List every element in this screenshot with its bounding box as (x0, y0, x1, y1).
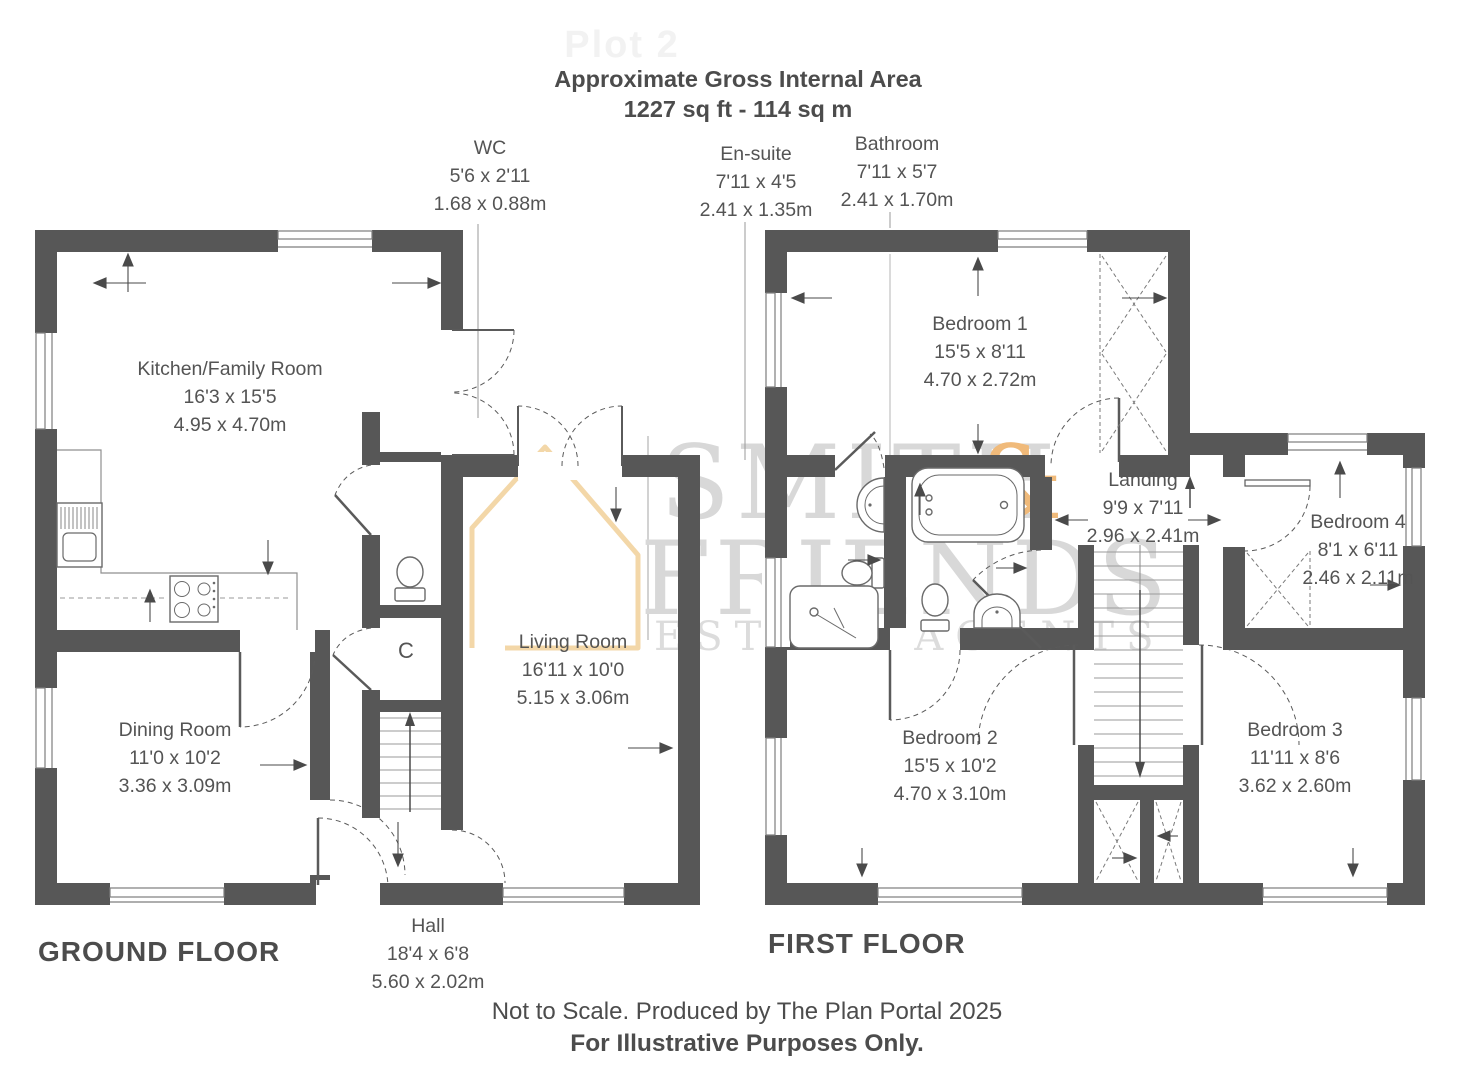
cupboard-label: C (398, 638, 414, 664)
staircase-first (1094, 545, 1183, 778)
room-label-bathroom: Bathroom 7'11 x 5'7 2.41 x 1.70m (841, 130, 954, 214)
room-dim-metric: 2.96 x 2.41m (1087, 522, 1200, 550)
toilet-icon (395, 557, 425, 601)
room-dim-imperial: 9'9 x 7'11 (1087, 494, 1200, 522)
room-label-bedroom3: Bedroom 3 11'11 x 8'6 3.62 x 2.60m (1239, 716, 1352, 800)
room-label-wc: WC 5'6 x 2'11 1.68 x 0.88m (434, 134, 547, 218)
room-label-hall: Hall 18'4 x 6'8 5.60 x 2.02m (372, 912, 485, 996)
ground-windows (32, 227, 624, 908)
room-dim-metric: 4.70 x 3.10m (894, 780, 1007, 808)
room-dim-metric: 3.36 x 3.09m (119, 772, 232, 800)
floorplan-page: SMITH & FRIENDS ESTATE AGENTS (0, 0, 1481, 1080)
room-dim-imperial: 16'3 x 15'5 (137, 383, 322, 411)
living-doors-opening (518, 452, 622, 480)
room-label-ensuite: En-suite 7'11 x 4'5 2.41 x 1.35m (700, 140, 813, 224)
room-label-bedroom1: Bedroom 1 15'5 x 8'11 4.70 x 2.72m (924, 310, 1037, 394)
room-name: Bedroom 1 (924, 310, 1037, 338)
room-name: Dining Room (119, 716, 232, 744)
room-dim-imperial: 15'5 x 8'11 (924, 338, 1037, 366)
plot-ghost-label: Plot 2 (564, 24, 679, 67)
room-label-landing: Landing 9'9 x 7'11 2.96 x 2.41m (1087, 466, 1200, 550)
wardrobe-bedroom4 (1247, 551, 1310, 626)
room-dim-imperial: 8'1 x 6'11 (1302, 536, 1413, 564)
room-dim-metric: 4.95 x 4.70m (137, 411, 322, 439)
room-name: Bedroom 4 (1302, 508, 1413, 536)
ensuite-toilet-icon (842, 558, 884, 588)
staircase-ground (380, 712, 441, 812)
room-dim-imperial: 7'11 x 4'5 (700, 168, 813, 196)
ground-door-swings (240, 465, 505, 883)
room-dim-imperial: 11'11 x 8'6 (1239, 744, 1352, 772)
hob-icon (170, 576, 218, 622)
room-dim-imperial: 7'11 x 5'7 (841, 158, 954, 186)
room-dim-metric: 2.41 x 1.70m (841, 186, 954, 214)
wardrobe-bedroom1 (1100, 254, 1166, 453)
room-name: Kitchen/Family Room (137, 355, 322, 383)
room-label-living: Living Room 16'11 x 10'0 5.15 x 3.06m (517, 628, 630, 712)
first-floor-title: FIRST FLOOR (768, 928, 966, 960)
ensuite-sink-icon (857, 478, 884, 532)
room-label-bedroom2: Bedroom 2 15'5 x 10'2 4.70 x 3.10m (894, 724, 1007, 808)
room-label-kitchen: Kitchen/Family Room 16'3 x 15'5 4.95 x 4… (137, 355, 322, 439)
bathroom-sink-icon (974, 594, 1020, 628)
room-dim-metric: 5.60 x 2.02m (372, 968, 485, 996)
wardrobes-landing (1096, 802, 1181, 881)
room-dim-imperial: 5'6 x 2'11 (434, 162, 547, 190)
kitchen-sink-icon (57, 503, 102, 567)
footer-line1: Not to Scale. Produced by The Plan Porta… (492, 998, 1003, 1026)
page-area: 1227 sq ft - 114 sq m (624, 96, 853, 123)
ground-floor-plan (32, 224, 700, 908)
room-dim-imperial: 18'4 x 6'8 (372, 940, 485, 968)
room-name: Bedroom 2 (894, 724, 1007, 752)
page-title: Approximate Gross Internal Area (554, 66, 921, 93)
bath-icon (912, 468, 1024, 542)
room-dim-metric: 1.68 x 0.88m (434, 190, 547, 218)
shower-icon (790, 586, 878, 648)
room-dim-imperial: 16'11 x 10'0 (517, 656, 630, 684)
room-dim-metric: 2.46 x 2.11m (1302, 564, 1413, 592)
room-name: Bedroom 3 (1239, 716, 1352, 744)
room-name: Landing (1087, 466, 1200, 494)
room-label-dining: Dining Room 11'0 x 10'2 3.36 x 3.09m (119, 716, 232, 800)
room-dim-metric: 2.41 x 1.35m (700, 196, 813, 224)
ground-floor-title: GROUND FLOOR (38, 936, 280, 968)
footer-line2: For Illustrative Purposes Only. (570, 1030, 924, 1058)
room-name: Living Room (517, 628, 630, 656)
room-name: En-suite (700, 140, 813, 168)
room-label-bedroom4: Bedroom 4 8'1 x 6'11 2.46 x 2.11m (1302, 508, 1413, 592)
room-dim-metric: 4.70 x 2.72m (924, 366, 1037, 394)
ground-walls (35, 230, 700, 905)
room-dim-imperial: 11'0 x 10'2 (119, 744, 232, 772)
room-dim-metric: 5.15 x 3.06m (517, 684, 630, 712)
room-name: Bathroom (841, 130, 954, 158)
room-dim-imperial: 15'5 x 10'2 (894, 752, 1007, 780)
bathroom-toilet-icon (921, 584, 949, 631)
front-door-opening (316, 880, 380, 908)
kitchen-double-doors (452, 330, 514, 455)
room-name: Hall (372, 912, 485, 940)
room-dim-metric: 3.62 x 2.60m (1239, 772, 1352, 800)
room-name: WC (434, 134, 547, 162)
